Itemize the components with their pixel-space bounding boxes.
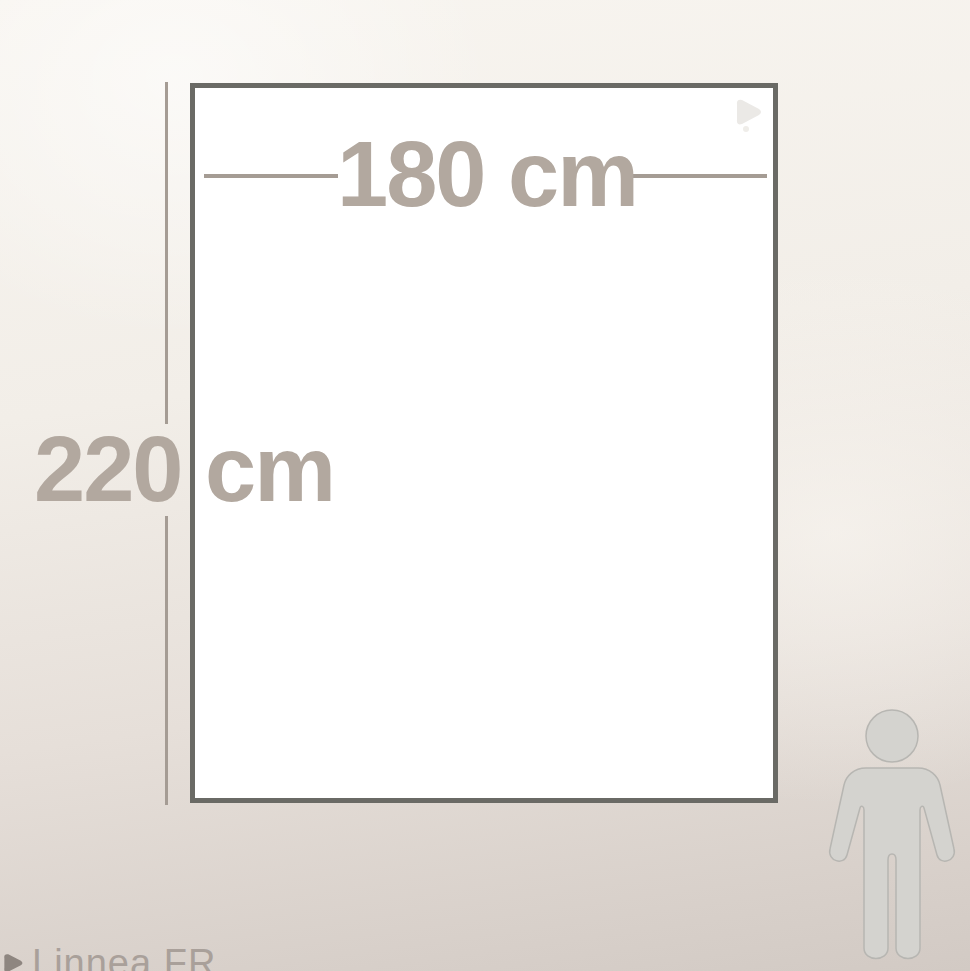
linnea-logo-icon xyxy=(733,96,765,136)
height-dimension-line-top xyxy=(165,82,168,424)
width-dimension-label: 180 cm xyxy=(327,126,647,222)
product-dimension-diagram: 180 cm 220 cm Linnea.FR xyxy=(0,0,970,971)
height-dimension-label: 220 cm xyxy=(24,421,344,517)
watermark: Linnea.FR xyxy=(2,944,216,971)
leaf-icon xyxy=(2,952,24,971)
person-icon xyxy=(826,702,958,964)
watermark-text: Linnea.FR xyxy=(32,944,216,971)
width-dimension-line-left xyxy=(204,174,338,178)
height-dimension-line-bottom xyxy=(165,516,168,805)
